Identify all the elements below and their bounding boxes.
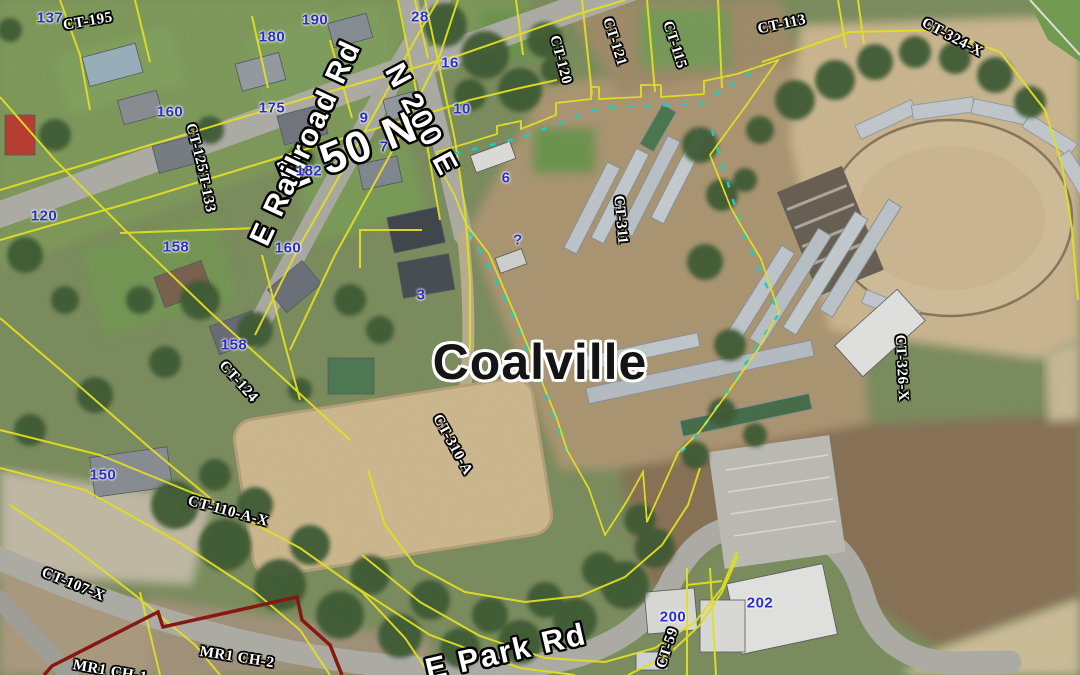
satellite-imagery <box>0 0 1080 675</box>
map-canvas[interactable]: E 50 NE Railroad RdN 200 EE Park RdCT-19… <box>0 0 1080 675</box>
